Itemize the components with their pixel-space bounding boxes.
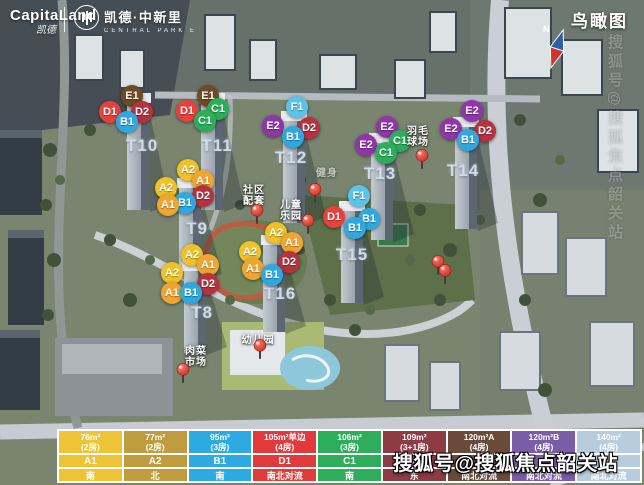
project-name-en: CENTRAL PARK E <box>104 28 197 34</box>
legend-unit-cell: D1 <box>253 455 316 467</box>
birdseye-map: CapitaLand 凯德 凯德·中新里 CENTRAL PARK E 鸟瞰图 … <box>0 0 644 485</box>
project-logo: 凯德·中新里 CENTRAL PARK E <box>104 7 197 34</box>
capitaland-chinese: 凯德 <box>36 21 56 36</box>
legend-size-cell: 95m²(3房) <box>189 431 252 453</box>
legend-orientation-cell: 南 <box>59 469 122 481</box>
legend-column: 95m²(3房)B1南 <box>189 431 252 481</box>
legend-column: 76m²(2房)A1南 <box>59 431 122 481</box>
legend-column: 77m²(2房)A2北 <box>124 431 187 481</box>
svg-text:N: N <box>543 24 550 34</box>
legend-column: 106m²(3房)C1南 <box>318 431 381 481</box>
legend-size-cell: 77m²(2房) <box>124 431 187 453</box>
legend-orientation-cell: 北 <box>124 469 187 481</box>
legend-unit-cell: A1 <box>59 455 122 467</box>
legend-size-cell: 76m²(2房) <box>59 431 122 453</box>
legend-unit-cell: C1 <box>318 455 381 467</box>
legend-orientation-cell: 南北对流 <box>253 469 316 481</box>
legend-unit-cell: B1 <box>189 455 252 467</box>
legend-orientation-cell: 南 <box>318 469 381 481</box>
view-title: 鸟瞰图 <box>571 7 628 32</box>
legend-column: 105m²单边(4房)D1南北对流 <box>253 431 316 481</box>
legend-size-cell: 106m²(3房) <box>318 431 381 453</box>
header-divider <box>64 7 65 32</box>
compass-icon: N <box>540 22 574 72</box>
watermark-vertical: 搜狐号@搜狐焦点韶关站 <box>604 34 625 243</box>
aerial-photo-background <box>0 0 644 485</box>
legend-size-cell: 105m²单边(4房) <box>253 431 316 453</box>
legend-unit-cell: A2 <box>124 455 187 467</box>
watermark-bottom: 搜狐号@搜狐焦点韶关站 <box>393 447 618 476</box>
legend-orientation-cell: 南 <box>189 469 252 481</box>
central-park-logo-icon <box>74 5 99 30</box>
project-name: 凯德·中新里 <box>104 7 197 26</box>
